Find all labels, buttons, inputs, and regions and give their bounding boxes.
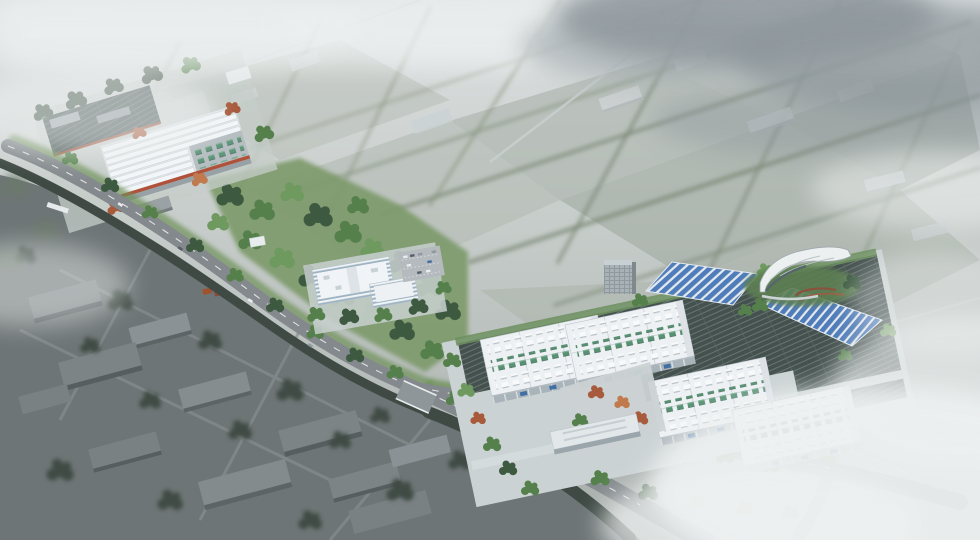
- rendering-canvas: [0, 0, 980, 540]
- gray-tower-block: [604, 260, 636, 294]
- aerial-rendering: [0, 0, 980, 540]
